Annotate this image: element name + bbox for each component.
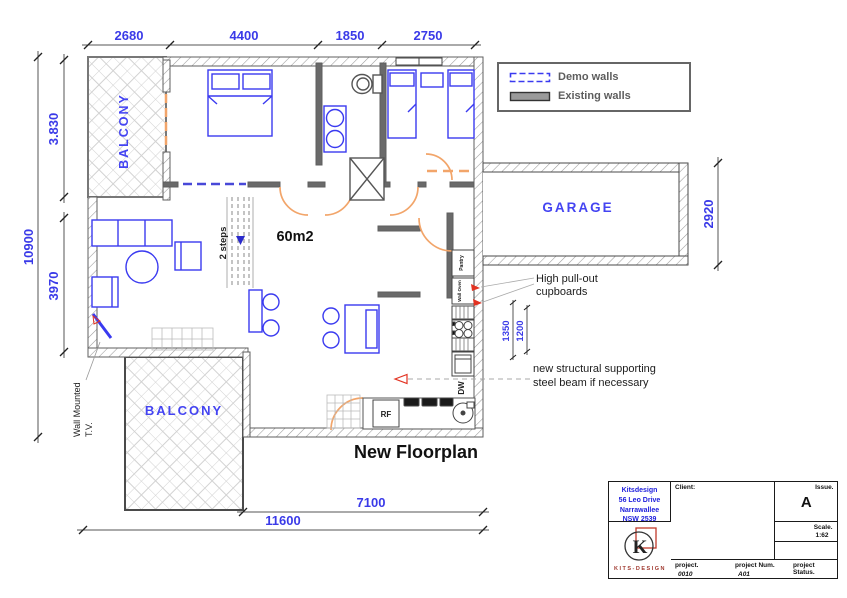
sink — [453, 402, 474, 423]
toilet — [352, 75, 382, 94]
side-table — [249, 290, 279, 336]
dw-label: DW — [457, 381, 466, 395]
armchair — [92, 277, 118, 307]
annotation-cupboards: High pull-out cupboards — [481, 273, 598, 302]
linen-cupboard — [350, 158, 384, 200]
company-address-1: 56 Leo Drive — [609, 496, 670, 506]
tv-text-1: Wall Mounted — [72, 382, 82, 437]
balcony-bottom-label: BALCONY — [145, 403, 223, 418]
project-num-label: project Num. — [735, 562, 775, 569]
dim-left-lower: 3970 — [46, 272, 61, 301]
pantry-label: Pantry — [459, 255, 465, 271]
garage-label: GARAGE — [542, 200, 613, 215]
dim-top-2: 4400 — [230, 28, 259, 43]
dim-kitchen-a: 1350 — [501, 320, 512, 341]
dining-table — [323, 305, 379, 353]
garage: GARAGE — [483, 163, 688, 265]
logo-text: KITS-DESIGN — [609, 566, 671, 572]
kitchen — [363, 250, 475, 429]
double-bed — [208, 70, 272, 136]
nightstand — [421, 73, 443, 87]
title-block-client: Client: — [671, 482, 775, 559]
annotation-beam: new structural supporting steel beam if … — [395, 363, 656, 389]
dim-left-upper: 3.830 — [46, 113, 61, 146]
existing-wall-swatch — [509, 91, 551, 102]
beam-text-1: new structural supporting — [533, 363, 656, 375]
cupboards-text-1: High pull-out — [536, 273, 598, 285]
dim-kitchen-b: 1200 — [515, 320, 526, 341]
kits-design-logo-icon: K — [621, 527, 659, 563]
balcony-top: BALCONY — [88, 57, 166, 197]
window — [396, 58, 442, 65]
title-block-project-row: project. 0010 project Num. A01 project S… — [671, 559, 838, 579]
dishwasher — [452, 352, 474, 376]
project-num-group: project Num. A01 — [735, 562, 775, 578]
title-block-company: Kitsdesign 56 Leo Drive Narrawallee NSW … — [609, 482, 671, 522]
balcony-bottom: BALCONY — [125, 357, 243, 510]
round-table — [126, 251, 158, 283]
dim-top-1: 2680 — [115, 28, 144, 43]
company-name: Kitsdesign — [609, 486, 670, 496]
project-status-group: project Status. — [793, 562, 838, 576]
issue-label: Issue. — [815, 484, 833, 491]
stairs: 2 steps — [218, 197, 253, 288]
single-bed — [388, 70, 416, 138]
project-status-label: project Status. — [793, 562, 815, 576]
title-block-issue: Issue. A — [775, 482, 838, 522]
demo-wall-swatch — [509, 72, 551, 83]
wall-oven-label: Wall Oven — [457, 280, 462, 302]
title-block: Kitsdesign 56 Leo Drive Narrawallee NSW … — [608, 481, 838, 579]
scale-label: Scale. — [814, 524, 833, 531]
title-block-logo: K KITS-DESIGN — [609, 522, 671, 579]
steps-label: 2 steps — [218, 227, 229, 260]
dim-bottom-inner: 7100 — [357, 495, 386, 510]
legend-demo-walls: Demo walls — [509, 71, 619, 83]
beam-text-2: steel beam if necessary — [533, 377, 649, 389]
client-label: Client: — [675, 484, 695, 491]
legend-existing-walls: Existing walls — [509, 90, 631, 102]
title-block-scale: Scale. 1:62 — [775, 522, 838, 542]
project-label: project. — [675, 562, 698, 569]
project-value: 0010 — [678, 571, 698, 578]
svg-text:K: K — [633, 537, 648, 558]
rf-label: RF — [381, 410, 392, 419]
door-arc — [280, 187, 308, 215]
dim-right-garage: 2920 — [701, 200, 716, 229]
single-bed — [448, 70, 474, 138]
legend-demo-label: Demo walls — [558, 71, 619, 83]
dim-top-4: 2750 — [414, 28, 443, 43]
dim-bottom-total: 11600 — [265, 513, 300, 528]
armchair — [175, 242, 201, 270]
project-num-value: A01 — [738, 571, 775, 578]
tv-text-2: T.V. — [84, 422, 94, 437]
legend: Demo walls Existing walls — [497, 62, 691, 112]
plan-title: New Floorplan — [354, 442, 478, 462]
dim-left-total: 10900 — [21, 229, 36, 265]
dim-top-3: 1850 — [336, 28, 365, 43]
door-arc — [325, 187, 353, 215]
scale-value: 1:62 — [815, 532, 828, 539]
issue-value: A — [775, 494, 838, 511]
area-label: 60m2 — [276, 229, 313, 245]
legend-existing-label: Existing walls — [558, 90, 631, 102]
balcony-top-label: BALCONY — [117, 93, 131, 169]
project-group: project. 0010 — [675, 562, 698, 578]
sofa — [92, 220, 172, 246]
door-arc — [390, 187, 418, 215]
company-address-2: Narrawallee — [609, 506, 670, 516]
wall-oven-cupboard — [452, 278, 474, 304]
cupboards-text-2: cupboards — [536, 286, 588, 298]
door-arc — [426, 154, 452, 180]
floorplan-canvas: BALCONY BALCONY GARAGE — [0, 0, 847, 598]
basins — [324, 106, 346, 152]
